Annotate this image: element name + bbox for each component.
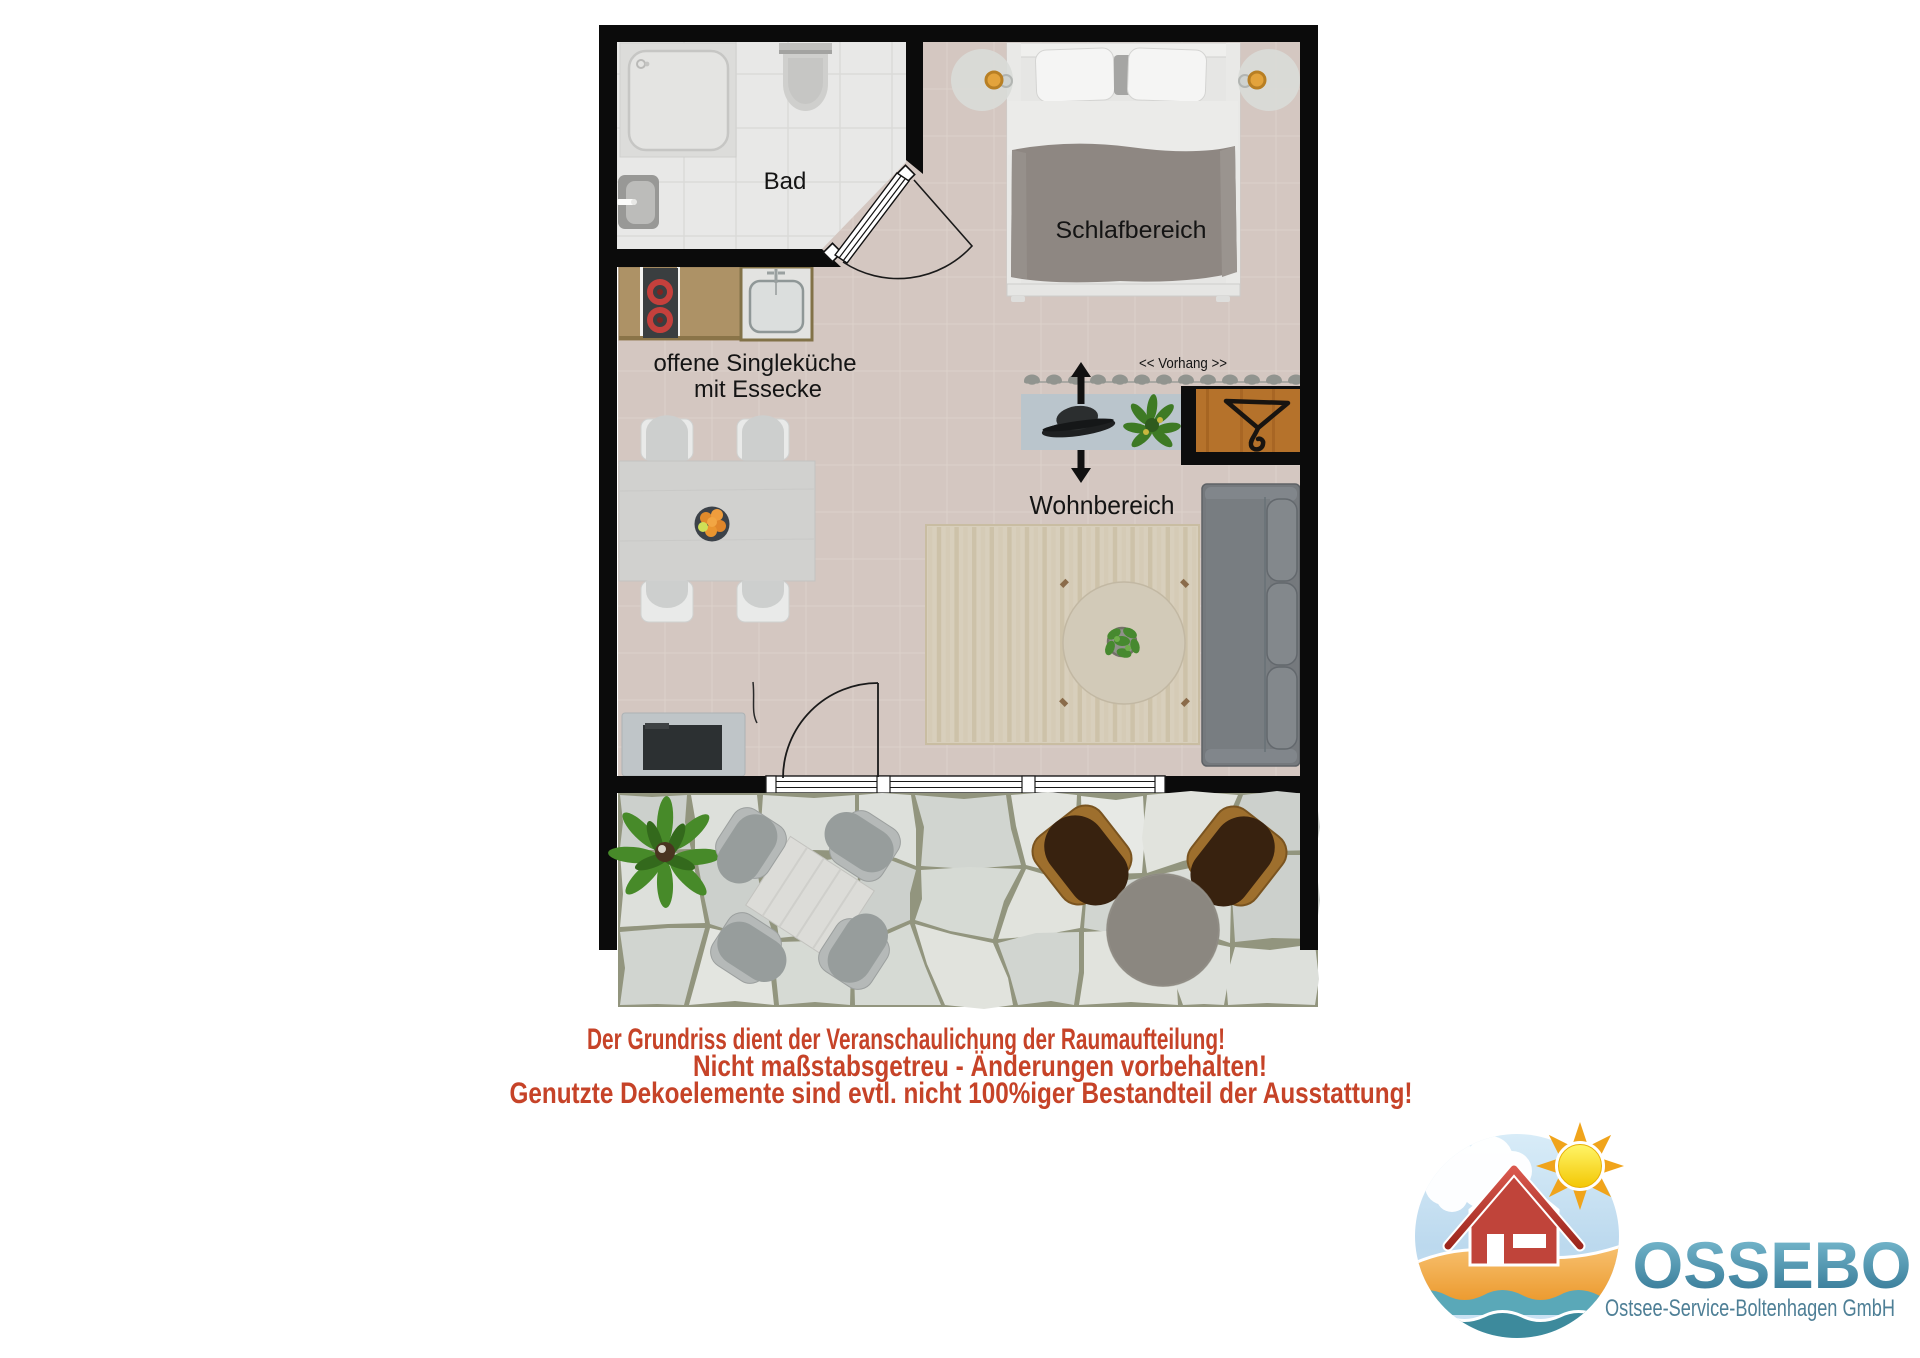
svg-text:offene Singleküche: offene Singleküche	[654, 350, 857, 377]
svg-text:Genutzte Dekoelemente sind evt: Genutzte Dekoelemente sind evtl. nicht 1…	[510, 1077, 1413, 1110]
svg-text:<< Vorhang >>: << Vorhang >>	[1139, 356, 1227, 372]
svg-text:Wohnbereich: Wohnbereich	[1030, 490, 1175, 520]
svg-text:Bad: Bad	[764, 168, 807, 195]
svg-text:mit Essecke: mit Essecke	[694, 376, 822, 403]
svg-text:Schlafbereich: Schlafbereich	[1056, 217, 1207, 244]
svg-text:OSSEBO: OSSEBO	[1633, 1228, 1912, 1302]
svg-text:Ostsee-Service-Boltenhagen Gmb: Ostsee-Service-Boltenhagen GmbH	[1605, 1295, 1895, 1322]
